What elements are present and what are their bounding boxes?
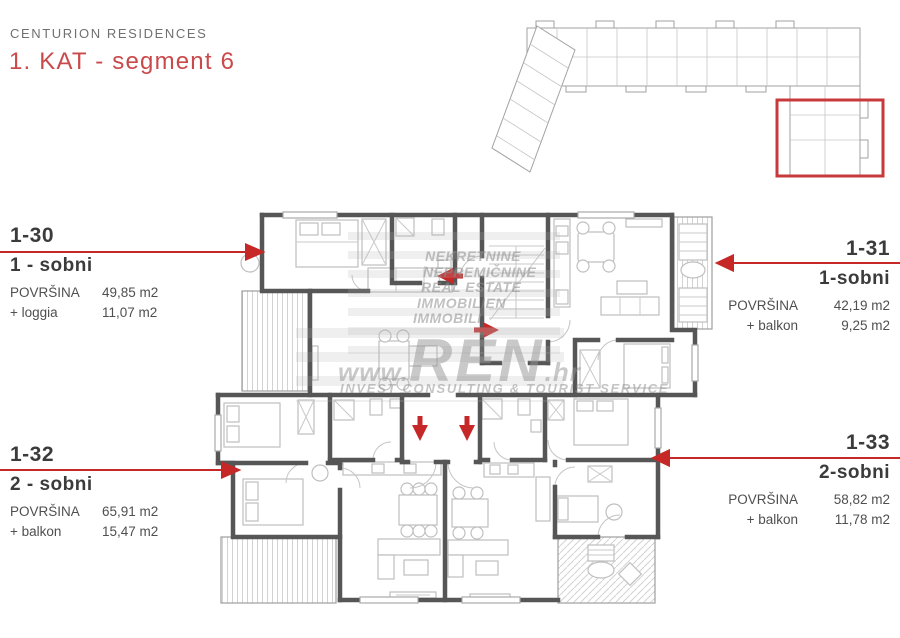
unit-area-row: POVRŠINA42,19 m2 bbox=[715, 296, 890, 316]
entrance-arrow-1-32-icon bbox=[412, 416, 428, 441]
main-floorplan bbox=[198, 205, 718, 610]
unit-label-1-33: 1-33 2-sobni POVRŠINA58,82 m2 + balkon11… bbox=[715, 431, 890, 530]
unit-area-row: POVRŠINA65,91 m2 bbox=[10, 502, 220, 522]
unit-type: 2 - sobni bbox=[10, 474, 220, 496]
unit-extra-row: + balkon9,25 m2 bbox=[715, 316, 890, 336]
unit-extra-row: + loggia11,07 m2 bbox=[10, 303, 220, 323]
unit-type: 1-sobni bbox=[715, 268, 890, 290]
entrance-arrow-1-31-icon bbox=[474, 322, 499, 338]
unit-label-1-30: 1-30 1 - sobni POVRŠINA49,85 m2 + loggia… bbox=[10, 224, 220, 323]
unit-extra-row: + balkon11,78 m2 bbox=[715, 510, 890, 530]
page-title: 1. KAT - segment 6 bbox=[9, 48, 235, 76]
loggia-unit-1-30 bbox=[242, 291, 310, 391]
unit-area-row: POVRŠINA49,85 m2 bbox=[10, 283, 220, 303]
unit-extra-row: + balkon15,47 m2 bbox=[10, 522, 220, 542]
overview-angled-wing bbox=[492, 26, 575, 172]
unit-type: 2-sobni bbox=[715, 462, 890, 484]
project-name: CENTURION RESIDENCES bbox=[10, 26, 207, 41]
terrace-unit-1-32 bbox=[221, 537, 336, 603]
unit-label-1-32: 1-32 2 - sobni POVRŠINA65,91 m2 + balkon… bbox=[10, 443, 220, 542]
unit-id: 1-32 bbox=[10, 443, 220, 467]
unit-label-1-31: 1-31 1-sobni POVRŠINA42,19 m2 + balkon9,… bbox=[715, 237, 890, 336]
unit-type: 1 - sobni bbox=[10, 255, 220, 277]
staircase bbox=[489, 246, 545, 320]
overview-horizontal-wing bbox=[527, 21, 860, 92]
entrance-arrow-1-33-icon bbox=[459, 416, 475, 441]
unit-id: 1-30 bbox=[10, 224, 220, 248]
unit-area-row: POVRŠINA58,82 m2 bbox=[715, 490, 890, 510]
unit-id: 1-31 bbox=[715, 237, 890, 261]
unit-id: 1-33 bbox=[715, 431, 890, 455]
building-overview-map bbox=[480, 10, 890, 185]
